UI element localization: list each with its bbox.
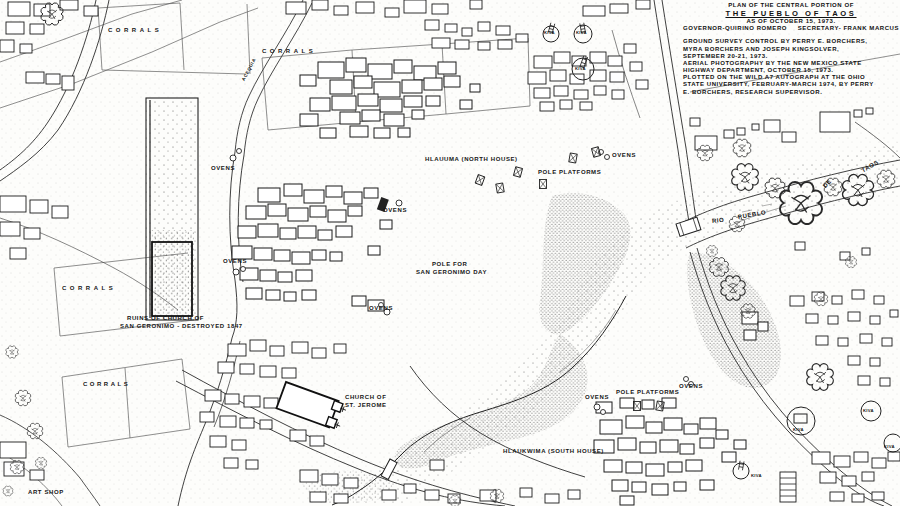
credit-line-5: HIGHWAY DEPARTMENT, OCTOBER 15, 1973.: [683, 67, 899, 74]
label-kiva-1: KIVA: [544, 30, 555, 35]
label-art-shop: ART SHOP: [28, 489, 64, 495]
title-officials: GOVERNOR-QUIRINO ROMERO SECRETARY- FRANK…: [683, 25, 899, 32]
ruins-enclosure: [146, 98, 198, 320]
secretary-name: SECRETARY- FRANK MARCUS: [798, 25, 899, 32]
label-kiva-4: KIVA: [793, 427, 804, 432]
credit-line-8: E. BORCHERS, RESEARCH SUPERVISOR.: [683, 89, 899, 96]
label-pole-for-san-geronimo-line1: POLE FOR: [432, 261, 467, 267]
label-pole-platforms-south: POLE PLATFORMS: [616, 389, 679, 395]
governor-name: GOVERNOR-QUIRINO ROMERO: [683, 25, 787, 32]
label-corrals-north: CORRALS: [108, 27, 162, 33]
credit-line-4: AERIAL PHOTOGRAPHY BY THE NEW MEXICO STA…: [683, 60, 899, 67]
label-kiva-6: KIVA: [884, 444, 895, 449]
label-pole-platforms-north: POLE PLATFORMS: [538, 169, 601, 175]
label-ovens-1: OVENS: [211, 165, 235, 171]
credit-line-7: STATE UNIVERSITY, FEBRUARY-MARCH 1974, B…: [683, 81, 899, 88]
label-church-line2: ST. JEROME: [345, 402, 387, 408]
label-ovens-7: OVENS: [679, 383, 703, 389]
label-ovens-5: OVENS: [612, 152, 636, 158]
hatched-ramp: [780, 472, 796, 502]
title-date: AS OF OCTOBER 15, 1973.: [683, 18, 899, 25]
label-hlaukwima-south-house: HLAUKWIMA (SOUTH HOUSE): [503, 448, 604, 454]
label-hlauuma-north-house: HLAUUMA (NORTH HOUSE): [425, 156, 518, 162]
label-church-line1: CHURCH OF: [345, 394, 386, 400]
label-ruins-line2: SAN GERONIMO - DESTROYED 1847: [120, 323, 243, 329]
credit-line-6: PLOTTED ON THE WILD A7 AUTOGRAPH AT THE …: [683, 74, 899, 81]
label-corrals-northeast: CORRALS: [262, 48, 316, 54]
label-ovens-2: OVENS: [383, 207, 407, 213]
label-corrals-west: CORRALS: [62, 285, 116, 291]
label-ovens-4: OVENS: [369, 305, 393, 311]
title-line-1: PLAN OF THE CENTRAL PORTION OF: [683, 2, 899, 9]
taos-pueblo-plan-map: CORRALS CORRALS CORRALS CORRALS ACEQUIA …: [0, 0, 900, 506]
credit-line-3: SEPTEMBER 20-21, 1973.: [683, 53, 899, 60]
label-kiva-5: KIVA: [863, 408, 874, 413]
label-kiva-3: KIVA: [575, 66, 586, 71]
label-corrals-southwest: CORRALS: [83, 381, 130, 387]
title-block: PLAN OF THE CENTRAL PORTION OF THE PUEBL…: [683, 2, 899, 96]
label-pole-for-san-geronimo-line2: SAN GERONIMO DAY: [416, 269, 487, 275]
label-kiva-2: KIVA: [576, 30, 587, 35]
label-kiva-7: KIVA: [751, 473, 762, 478]
label-ovens-3: OVENS: [223, 258, 247, 264]
label-ovens-6: OVENS: [585, 394, 609, 400]
map-title: THE PUEBLO OF TAOS: [683, 9, 899, 18]
credit-line-2: MYRA BORCHERS AND JOSEPH KINGSOLVER,: [683, 46, 899, 53]
label-ruins-line1: RUINS OF CHURCH OF: [127, 315, 204, 321]
credit-line-1: GROUND SURVEY CONTROL BY PERRY E. BORCHE…: [683, 38, 899, 45]
